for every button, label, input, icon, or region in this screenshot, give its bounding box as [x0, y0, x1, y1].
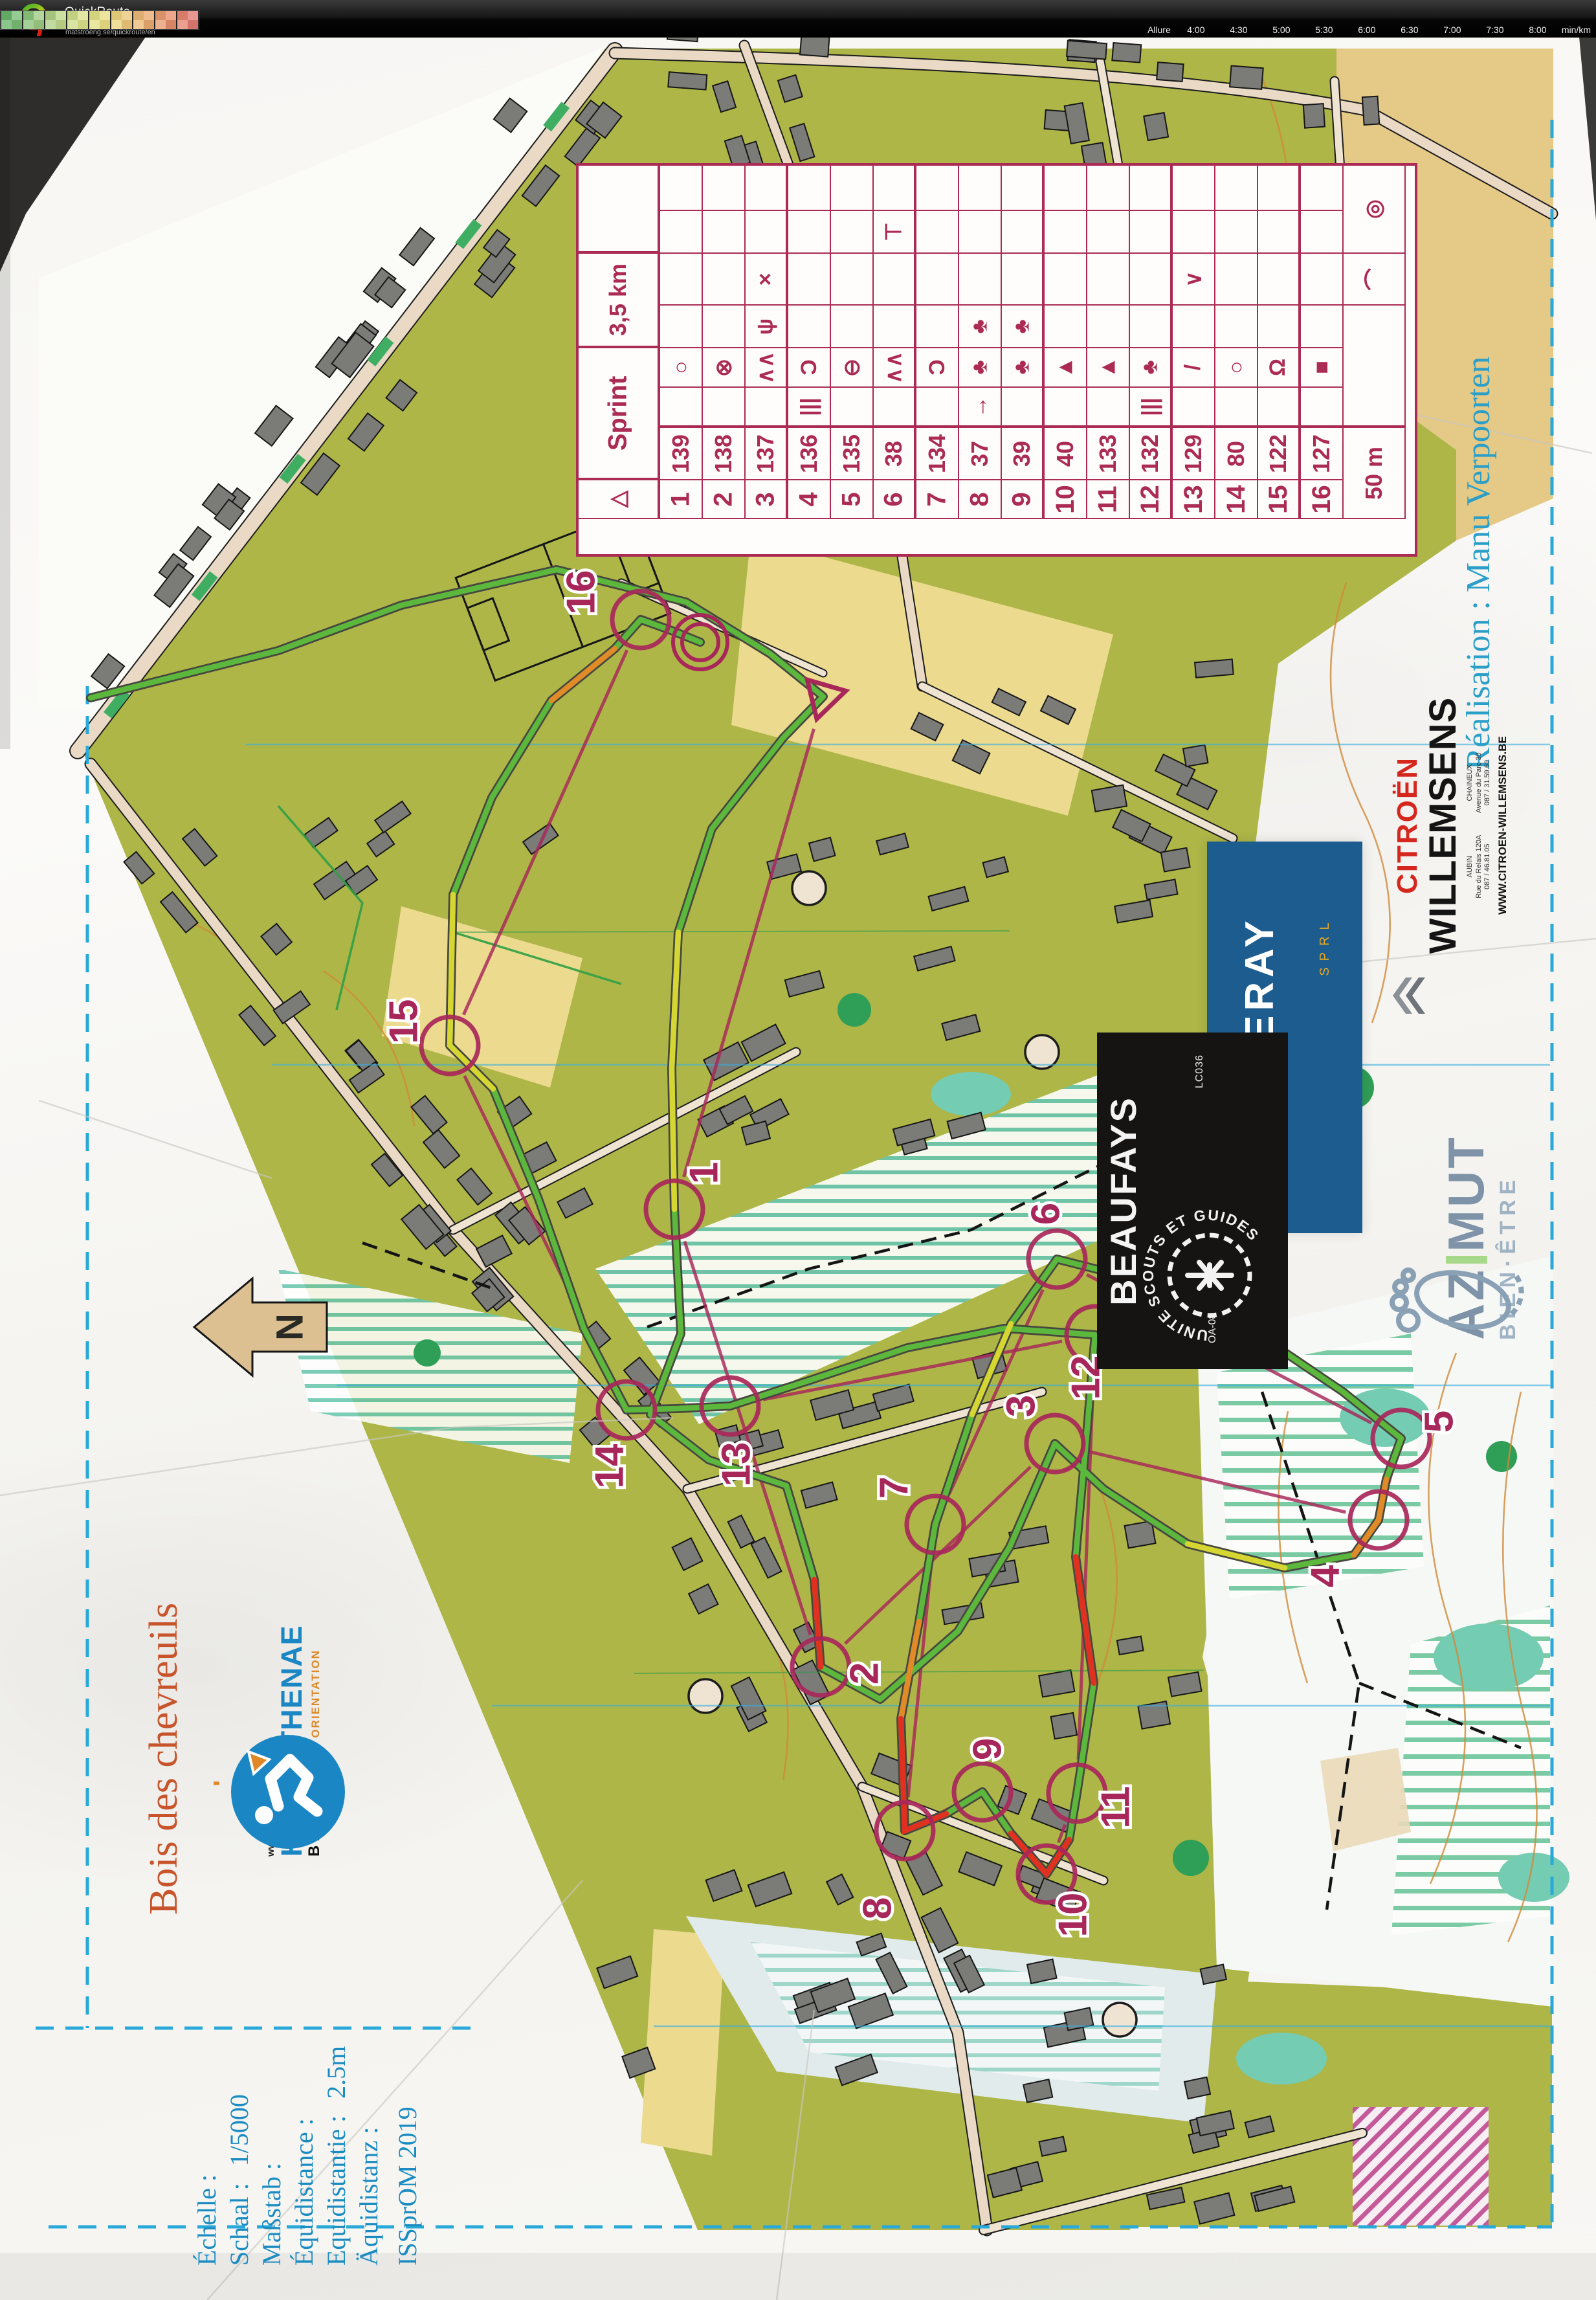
control-sheet-cell	[703, 388, 746, 428]
pace-scale-labels: Allure 4:004:305:005:306:006:307:007:308…	[1147, 25, 1591, 35]
legend-scale-nl: Schaal :	[223, 2183, 256, 2266]
titlebar: QuickRoute Version 2.4 matstroeng.se/qui…	[0, 0, 1596, 38]
control-sheet-cell	[1258, 254, 1301, 306]
control-sheet-cell	[1087, 388, 1130, 428]
control-number-cell: 16	[1301, 480, 1344, 519]
azimut-name-right: MUT	[1437, 1135, 1496, 1252]
control-number-label: 14	[587, 1444, 632, 1488]
control-sheet-cell	[1130, 166, 1173, 211]
finish-distance-cell: 50 m	[1344, 428, 1406, 519]
azimut-footprint-icon	[1385, 1262, 1534, 1340]
control-sheet-cell	[1215, 388, 1258, 428]
control-number-cell: 12	[1130, 480, 1173, 519]
control-sheet-cell: /	[1173, 348, 1215, 388]
control-sheet-cell	[1173, 211, 1215, 254]
control-sheet-cell	[1301, 388, 1344, 428]
pace-tick: 5:00	[1260, 25, 1303, 35]
control-sheet-cell: ◎	[1344, 166, 1406, 254]
sponsor-citroen[interactable]: CITROËN WILLEMSENS AUBINRue du Relais 12…	[1391, 634, 1576, 1016]
citroen-office-2: CHAINEUXAvenue du Parc 30087 / 31.59.69	[1466, 752, 1492, 812]
control-sheet-cell	[1173, 388, 1215, 428]
legend-scale-nl-value: 1/5000	[223, 2094, 256, 2166]
control-sheet-cell	[1002, 211, 1045, 254]
control-sheet-cell	[874, 254, 916, 306]
pace-tick: 4:00	[1175, 25, 1217, 35]
control-sheet-cell	[1045, 306, 1087, 348]
control-sheet-cell	[959, 166, 1002, 211]
beaufays-unit-code: LC036	[1194, 1055, 1206, 1088]
control-sheet-cell	[1002, 388, 1045, 428]
sponsor-azimut[interactable]: AZ MUT BIEN·ÊTRE	[1385, 1029, 1573, 1340]
pace-color-scale[interactable]	[0, 10, 199, 30]
control-sheet-cell	[1045, 166, 1087, 211]
control-number-cell: 11	[1087, 480, 1130, 519]
control-sheet-cell	[746, 166, 788, 211]
control-sheet-cell: ○	[1215, 348, 1258, 388]
pace-tick: 7:00	[1431, 25, 1474, 35]
control-number-cell: 3	[746, 480, 788, 519]
control-code-cell: 122	[1258, 428, 1301, 480]
control-sheet-cell: ∧∧	[874, 348, 916, 388]
control-number-label: 10	[1050, 1893, 1095, 1937]
control-sheet-cell: △	[579, 480, 660, 519]
control-sheet-cell: ⌒	[1344, 254, 1406, 306]
control-number-label: 13	[714, 1442, 759, 1487]
control-sheet-cell: Ω	[1258, 348, 1301, 388]
control-sheet-cell	[916, 211, 959, 254]
control-sheet-cell	[660, 306, 703, 348]
control-sheet-cell	[1258, 166, 1301, 211]
control-sheet-cell	[1173, 306, 1215, 348]
control-sheet-cell	[703, 166, 746, 211]
control-number-label: 9	[965, 1738, 1010, 1760]
hermathenae-runner-icon: '	[214, 1727, 349, 1857]
control-sheet-cell	[788, 166, 831, 211]
control-sheet-cell: ψ	[746, 306, 788, 348]
control-code-cell: 133	[1087, 428, 1130, 480]
control-code-cell: 127	[1301, 428, 1344, 480]
citroen-chevrons-icon	[1391, 975, 1425, 1016]
control-code-cell: 129	[1173, 428, 1215, 480]
control-code-cell: 136	[788, 428, 831, 480]
control-sheet-cell	[660, 388, 703, 428]
control-sheet-cell	[831, 306, 874, 348]
club-tag: ORIENTATION	[310, 1649, 321, 1738]
control-sheet-cell	[660, 254, 703, 306]
course-name-cell: Sprint	[579, 348, 660, 480]
control-number-cell: 9	[1002, 480, 1045, 519]
control-code-cell: 132	[1130, 428, 1173, 480]
map-legend-block: Échelle :Schaal :1/5000Maßstab :Équidist…	[191, 1910, 492, 2266]
control-sheet-cell: ♣	[1002, 306, 1045, 348]
control-number-label: 7	[872, 1477, 916, 1499]
beaufays-region-code: OA-08	[1207, 1313, 1219, 1343]
control-sheet-cell	[788, 254, 831, 306]
control-sheet-cell: ▲	[1045, 348, 1087, 388]
control-sheet-cell	[703, 306, 746, 348]
control-sheet-cell	[1087, 166, 1130, 211]
control-sheet-cell	[916, 388, 959, 428]
control-sheet-cell	[788, 211, 831, 254]
legend-scale-de: Maßstab :	[256, 2163, 288, 2266]
control-sheet-cell	[831, 166, 874, 211]
control-sheet-cell	[1344, 306, 1406, 428]
control-sheet-cell	[788, 306, 831, 348]
control-sheet-cell	[1301, 166, 1344, 211]
control-number-label: 16	[559, 570, 603, 615]
map-title: Bois des chevreuils	[141, 1397, 198, 1915]
control-sheet-cell: ■	[1301, 348, 1344, 388]
svg-text:N: N	[269, 1313, 311, 1341]
control-number-cell: 15	[1258, 480, 1301, 519]
control-sheet-cell: ○	[660, 348, 703, 388]
pace-tick: 8:00	[1516, 25, 1559, 35]
pace-unit: min/km	[1562, 25, 1591, 35]
legend-equi-de: Äquidistanz :	[353, 2127, 385, 2266]
control-number-label: 5	[1417, 1411, 1461, 1433]
pace-tick: 7:30	[1474, 25, 1516, 35]
control-sheet-cell	[916, 166, 959, 211]
control-sheet-cell: →	[959, 388, 1002, 428]
control-sheet-cell: Ɔ	[916, 348, 959, 388]
control-number-label: 11	[1093, 1786, 1138, 1829]
control-number-cell: 7	[916, 480, 959, 519]
control-number-cell: 5	[831, 480, 874, 519]
control-sheet-cell	[1130, 254, 1173, 306]
control-sheet-cell	[916, 306, 959, 348]
control-sheet-cell	[959, 211, 1002, 254]
control-sheet-cell	[703, 254, 746, 306]
pace-tick: 4:30	[1217, 25, 1260, 35]
control-code-cell: 139	[660, 428, 703, 480]
quickroute-window: { "toolbar": { "app_name": "QuickRoute",…	[0, 0, 1596, 2300]
control-code-cell: 38	[874, 428, 916, 480]
control-number-cell: 14	[1215, 480, 1258, 519]
control-code-cell: 39	[1002, 428, 1045, 480]
legend-equi-fr: Équidistance :	[288, 2118, 320, 2266]
control-sheet-cell	[831, 211, 874, 254]
control-sheet-cell	[1301, 306, 1344, 348]
control-number-label: 2	[842, 1662, 887, 1684]
control-sheet-cell	[831, 254, 874, 306]
pace-tick: 6:00	[1346, 25, 1388, 35]
control-sheet-cell	[1087, 254, 1130, 306]
control-code-cell: 134	[916, 428, 959, 480]
control-code-cell: 80	[1215, 428, 1258, 480]
control-number-cell: 10	[1045, 480, 1087, 519]
piqueray-legal: SPRL	[1318, 916, 1333, 1158]
control-sheet-cell	[1130, 306, 1173, 348]
control-sheet-cell	[746, 388, 788, 428]
control-number-cell: 6	[874, 480, 916, 519]
control-code-cell: 37	[959, 428, 1002, 480]
control-number-cell: 2	[703, 480, 746, 519]
control-code-cell: 135	[831, 428, 874, 480]
control-sheet-cell	[1173, 166, 1215, 211]
control-number-cell: 13	[1173, 480, 1215, 519]
control-code-cell: 138	[703, 428, 746, 480]
control-sheet-cell	[1087, 211, 1130, 254]
control-sheet-cell	[1215, 166, 1258, 211]
control-sheet-cell: ⊗	[703, 348, 746, 388]
control-sheet-cell	[660, 166, 703, 211]
citroen-website[interactable]: WWW.CITROEN-WILLEMSENS.BE	[1496, 634, 1509, 1016]
control-sheet-cell	[1087, 306, 1130, 348]
pace-tick: 5:30	[1303, 25, 1346, 35]
control-sheet-cell	[1002, 254, 1045, 306]
control-sheet-cell	[1301, 211, 1344, 254]
control-number-cell: 4	[788, 480, 831, 519]
control-sheet-cell	[1045, 388, 1087, 428]
control-sheet-cell: 3,5 km	[579, 254, 660, 348]
pace-ticks: 4:004:305:005:306:006:307:007:308:00	[1175, 25, 1559, 35]
control-sheet-cell	[874, 388, 916, 428]
control-sheet-cell	[660, 211, 703, 254]
club-logo-block: ' www.herma-co.be HERMATHENAE BELGIQUE O…	[214, 1507, 375, 1857]
control-sheet-cell: ♣	[959, 306, 1002, 348]
legend-equi-nl: Equidistantie :	[320, 2116, 353, 2266]
control-sheet-cell: |||	[788, 388, 831, 428]
control-sheet-cell	[874, 306, 916, 348]
control-sheet-cell	[1301, 254, 1344, 306]
pace-tick: 6:30	[1388, 25, 1431, 35]
control-number-cell: 8	[959, 480, 1002, 519]
control-sheet-cell: ▲	[1087, 348, 1130, 388]
control-sheet-cell	[831, 388, 874, 428]
control-sheet-cell	[1215, 306, 1258, 348]
control-sheet-cell	[1045, 211, 1087, 254]
control-sheet-cell: ⊖	[831, 348, 874, 388]
control-sheet-cell: ♣	[1002, 348, 1045, 388]
control-number-label: 4	[1303, 1565, 1347, 1587]
control-sheet-cell	[579, 166, 660, 254]
control-number-cell: 1	[660, 480, 703, 519]
control-number-label: 8	[855, 1897, 900, 1919]
control-sheet-cell	[1258, 388, 1301, 428]
control-code-cell: 40	[1045, 428, 1087, 480]
control-sheet-cell	[746, 211, 788, 254]
control-sheet-cell	[1045, 254, 1087, 306]
control-sheet-cell	[703, 211, 746, 254]
control-sheet-cell: ♣	[959, 348, 1002, 388]
control-sheet-cell	[916, 254, 959, 306]
control-sheet-cell: ⊤	[874, 211, 916, 254]
legend-scale-fr: Échelle :	[191, 2174, 223, 2266]
control-sheet-cell	[1258, 211, 1301, 254]
control-description-sheet: 3,5 kmSprint△○1391⊗1382×ψ∧∧1373Ɔ|||1364⊖…	[576, 163, 1417, 557]
control-sheet-cell: Ɔ	[788, 348, 831, 388]
control-code-cell: 137	[746, 428, 788, 480]
citroen-office-1: AUBINRue du Relais 120A087 / 46.81.05	[1466, 835, 1492, 899]
control-sheet-cell: ×	[746, 254, 788, 306]
control-number-label: 6	[1023, 1203, 1068, 1225]
legend-standard: ISSprOM 2019	[392, 1910, 424, 2266]
control-sheet-cell	[1258, 306, 1301, 348]
control-sheet-cell	[1215, 211, 1258, 254]
legend-equi-nl-value: 2.5m	[320, 2046, 353, 2099]
sponsor-beaufays[interactable]: BEAUFAYS UNITE SCOUTS ET GUIDES LC036 OA…	[1097, 1033, 1288, 1369]
control-sheet-cell: ∧∧	[746, 348, 788, 388]
pace-label: Allure	[1147, 25, 1171, 35]
control-sheet-cell: |||	[1130, 388, 1173, 428]
control-number-label: 1	[682, 1162, 726, 1184]
control-number-label: 3	[999, 1395, 1043, 1417]
control-number-label: 15	[381, 999, 426, 1044]
control-sheet-cell: ♣	[1130, 348, 1173, 388]
control-sheet-cell	[1002, 166, 1045, 211]
citroen-brand: CITROËN	[1391, 757, 1424, 894]
control-sheet-cell: ∨	[1173, 254, 1215, 306]
control-sheet-cell	[1215, 254, 1258, 306]
citroen-dealer-name: WILLEMSENS	[1424, 634, 1463, 1016]
control-sheet-cell	[1130, 211, 1173, 254]
control-sheet-cell	[874, 166, 916, 211]
control-sheet-cell	[959, 254, 1002, 306]
